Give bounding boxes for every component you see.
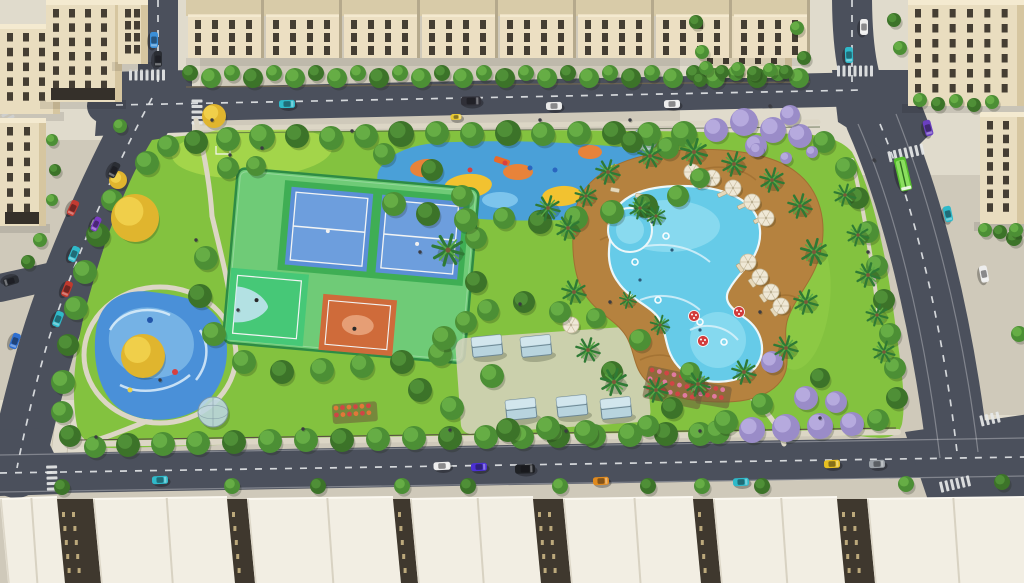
tree-canopy-light <box>899 477 909 487</box>
tree-canopy-light <box>53 402 66 415</box>
building-window <box>53 81 59 90</box>
tree-canopy-light <box>413 69 425 81</box>
mushroom-dot <box>695 314 697 316</box>
play-structure <box>468 168 473 173</box>
facade-window <box>846 554 849 559</box>
tree-canopy-light <box>604 122 618 136</box>
tree-canopy-light <box>267 66 277 76</box>
crosswalk-stripe <box>162 70 165 81</box>
building-window <box>987 203 993 212</box>
building-window <box>967 54 973 63</box>
townhouse-window <box>741 46 747 55</box>
building-window <box>7 173 13 182</box>
vehicle-cabin <box>861 23 867 30</box>
parasol-pole <box>711 177 713 179</box>
vehicle-cabin <box>454 115 459 119</box>
tree-canopy-light <box>153 433 167 447</box>
facade-window <box>541 540 544 545</box>
townhouse-window <box>558 20 564 29</box>
facade-window <box>235 540 238 545</box>
townhouse-parapet <box>498 0 576 16</box>
tree-canopy-light <box>47 135 54 142</box>
palm-crown <box>798 204 802 208</box>
tree-canopy-light <box>673 123 689 139</box>
crosswalk-stripe <box>843 66 846 77</box>
townhouse-window <box>195 33 201 42</box>
townhouse-gap <box>339 0 342 58</box>
building-window <box>915 24 921 33</box>
tree-canopy-light <box>183 66 193 76</box>
rooftop-slab <box>867 497 1024 583</box>
building-window <box>39 48 45 57</box>
building-window <box>85 23 91 32</box>
townhouse-gap <box>261 0 264 58</box>
facade-window <box>75 540 78 545</box>
townhouse-window <box>273 20 279 29</box>
tree-canopy-light <box>390 123 406 139</box>
building-window <box>987 121 993 130</box>
tree-canopy-light <box>869 410 882 423</box>
townhouse-window <box>429 46 435 55</box>
palm-crown <box>696 382 700 386</box>
mushroom-dot <box>693 317 695 319</box>
townhouse-window <box>246 33 252 42</box>
tree-canopy-light <box>1010 224 1018 232</box>
vehicle-cabin <box>828 461 835 467</box>
townhouse-window <box>324 33 330 42</box>
townhouse-window <box>480 20 486 29</box>
tree-canopy-light <box>519 66 529 76</box>
tree-canopy-light <box>404 427 418 441</box>
tree-canopy-light <box>495 208 508 221</box>
tree-canopy-light <box>251 126 267 142</box>
townhouse-window <box>541 46 547 55</box>
facade-window <box>552 554 555 559</box>
palm-crown <box>812 250 816 254</box>
building-window <box>101 23 107 32</box>
tree-canopy-light <box>204 105 218 119</box>
mushroom-dot <box>736 310 738 312</box>
townhouse-window <box>307 46 313 55</box>
townhouse-window <box>775 33 781 42</box>
facade-window <box>402 554 405 559</box>
facade-window <box>399 526 402 531</box>
vehicle-cabin <box>846 51 852 58</box>
townhouse-window <box>507 20 513 29</box>
building-window <box>23 92 29 101</box>
tree-canopy-light <box>455 69 467 81</box>
building-window <box>125 21 131 30</box>
townhouse-window <box>368 20 374 29</box>
building-window <box>85 38 91 47</box>
person <box>628 118 631 121</box>
building-window <box>101 9 107 18</box>
townhouse-parapet <box>420 0 498 16</box>
tree-canopy-light <box>764 64 772 72</box>
tree-canopy-light <box>623 69 635 81</box>
townhouse-window <box>680 33 686 42</box>
tree-canopy-light <box>663 398 676 411</box>
townhouse-window <box>741 33 747 42</box>
townhouse-window <box>351 33 357 42</box>
parasol-pole <box>732 187 734 189</box>
facade-window <box>701 540 704 545</box>
building-cornice <box>908 0 1024 5</box>
townhouse-window <box>446 46 452 55</box>
palm-crown <box>875 313 879 317</box>
building-window <box>134 33 140 42</box>
tree-canopy-light <box>497 69 509 81</box>
tree-canopy-light <box>690 16 698 24</box>
townhouse-window <box>246 20 252 29</box>
tree-canopy-light <box>462 123 476 137</box>
building-window <box>53 9 59 18</box>
tree-canopy-light <box>950 95 958 103</box>
person <box>518 302 521 305</box>
tree-canopy-light <box>375 144 388 157</box>
tree-canopy-light <box>620 424 634 438</box>
townhouse-window <box>602 20 608 29</box>
person <box>608 300 611 303</box>
facade-window <box>398 512 401 517</box>
building-window <box>1003 203 1009 212</box>
vehicle-windshield <box>483 464 485 470</box>
facade-window <box>699 526 702 531</box>
tree-canopy-light <box>692 169 704 181</box>
building-window <box>85 81 91 90</box>
townhouse-window <box>429 20 435 29</box>
mushroom-cap <box>734 307 745 318</box>
vehicle-cabin <box>151 36 157 43</box>
townhouse-window <box>480 33 486 42</box>
crosswalk-stripe <box>151 70 154 81</box>
townhouse-parapet <box>186 0 264 16</box>
townhouse-parapet <box>264 0 342 16</box>
tree-canopy-light <box>118 434 132 448</box>
aerial-render-stage <box>0 0 1024 583</box>
vehicle-cabin <box>155 55 161 62</box>
tree-canopy-light <box>329 69 341 81</box>
tree-canopy-light <box>61 426 74 439</box>
tree-canopy-light <box>321 127 335 141</box>
building-window <box>1003 162 1009 171</box>
building-window <box>932 24 938 33</box>
facade-window <box>233 526 236 531</box>
palm-crown <box>612 380 616 384</box>
facade-window <box>702 554 705 559</box>
townhouse-window <box>446 33 452 42</box>
building-window <box>101 81 107 90</box>
parasol-pole <box>570 324 572 326</box>
building-window <box>984 84 990 93</box>
facade-window <box>698 512 701 517</box>
palm-crown <box>742 370 746 374</box>
building-window <box>1003 176 1009 185</box>
building-window <box>7 142 13 151</box>
facade-window <box>78 568 81 573</box>
tree-canopy-light <box>477 66 487 76</box>
tree-canopy-light <box>561 66 571 76</box>
road <box>104 89 872 106</box>
palm-crown <box>445 247 450 252</box>
townhouse-window <box>195 20 201 29</box>
townhouse-window <box>663 46 669 55</box>
building-window <box>1003 190 1009 199</box>
tree-canopy-light <box>553 479 563 489</box>
crosswalk-stripe <box>129 70 132 81</box>
townhouse-window <box>524 33 530 42</box>
building-window <box>967 9 973 18</box>
vehicle-cabin <box>550 103 557 109</box>
building-window <box>125 33 131 42</box>
parasol-pole <box>751 201 753 203</box>
vehicle-windshield <box>558 103 560 109</box>
building-window <box>69 23 75 32</box>
townhouse-window <box>558 46 564 55</box>
townhouse-window <box>324 46 330 55</box>
crosswalk-stripe <box>859 66 862 77</box>
palm-crown <box>654 214 657 217</box>
tree-canopy-light <box>59 335 72 348</box>
vehicle-cabin <box>467 98 476 105</box>
building-window <box>1003 148 1009 157</box>
tree-canopy-light <box>137 152 151 166</box>
crosswalk-stripe <box>848 66 851 77</box>
vehicle-windshield <box>836 461 838 467</box>
facade-window <box>853 526 856 531</box>
building-window <box>39 77 45 86</box>
building-window <box>950 39 956 48</box>
building-window <box>984 24 990 33</box>
townhouse-window <box>324 20 330 29</box>
building-window <box>69 9 75 18</box>
palm-crown <box>843 193 847 197</box>
mushroom-fountain <box>734 307 745 318</box>
facade-window <box>63 526 66 531</box>
splash-equipment <box>172 369 178 375</box>
play-structure <box>503 161 508 166</box>
facade-window <box>539 526 542 531</box>
tree-canopy-light <box>188 432 202 446</box>
vehicle-windshield <box>745 479 747 485</box>
townhouse-window <box>351 46 357 55</box>
townhouse-window <box>697 33 703 42</box>
tree-canopy-light <box>798 52 806 60</box>
townhouse-window <box>585 46 591 55</box>
person <box>758 310 761 313</box>
vehicle-windshield <box>151 44 157 46</box>
building-window <box>932 84 938 93</box>
palm-crown <box>546 206 550 210</box>
building-window <box>932 39 938 48</box>
tree-canopy-light <box>66 297 80 311</box>
tree-canopy-light <box>371 69 383 81</box>
tree-canopy-light <box>418 203 432 217</box>
tree-canopy-light <box>234 351 248 365</box>
building-window <box>101 66 107 75</box>
mushroom-dot <box>704 339 706 341</box>
building-window <box>984 54 990 63</box>
building-window <box>125 45 131 54</box>
facade-window <box>549 526 552 531</box>
tree-canopy-light <box>479 300 492 313</box>
building-window <box>134 21 140 30</box>
building-window <box>915 69 921 78</box>
tree-canopy-light <box>456 209 470 223</box>
tree-canopy-light <box>755 479 765 489</box>
palm-crown <box>648 154 652 158</box>
person <box>818 416 821 419</box>
tree-canopy-light <box>442 397 456 411</box>
tree-canopy-light <box>694 74 702 82</box>
person <box>94 435 97 438</box>
building-window <box>932 9 938 18</box>
townhouse-window <box>619 46 625 55</box>
tree-canopy-light <box>186 131 200 145</box>
townhouse-window <box>195 46 201 55</box>
mushroom-cap <box>698 336 709 347</box>
tree-canopy-light <box>837 158 850 171</box>
facade-window <box>554 568 557 573</box>
tree-canopy-light <box>894 42 902 50</box>
tree-canopy-light <box>696 46 704 54</box>
tree-canopy-light <box>434 327 448 341</box>
building-cornice <box>980 112 1024 117</box>
building-window <box>950 9 956 18</box>
tree-canopy-light <box>272 361 286 375</box>
tree-canopy-light <box>751 144 759 152</box>
person <box>866 250 869 253</box>
tree-canopy-light <box>248 157 260 169</box>
crosswalk-stripe <box>837 66 840 77</box>
facade-window <box>848 568 851 573</box>
townhouse-window <box>212 33 218 42</box>
tree-canopy-light <box>631 330 644 343</box>
building-window <box>101 38 107 47</box>
palm-crown <box>804 300 808 304</box>
facade-window <box>65 540 68 545</box>
facade-window <box>404 568 407 573</box>
tree-canopy-light <box>700 62 708 70</box>
vehicle-cabin <box>597 478 604 484</box>
crosswalk-stripe <box>146 70 149 81</box>
tree-canopy-light <box>410 379 424 393</box>
building-window <box>7 127 13 136</box>
vehicle-windshield <box>164 477 166 483</box>
crosswalk-stripe <box>192 105 203 108</box>
tree-canopy-light <box>762 119 778 135</box>
tree-canopy-light <box>393 66 403 76</box>
building-window <box>69 52 75 61</box>
townhouse-gap <box>651 0 654 58</box>
person <box>418 250 421 253</box>
building-window <box>1003 121 1009 130</box>
tree-canopy-light <box>351 66 361 76</box>
building-window <box>984 9 990 18</box>
townhouse-parapet <box>732 0 810 16</box>
tree-canopy-light <box>641 479 651 489</box>
facade-window <box>542 554 545 559</box>
palm-crown <box>856 233 860 237</box>
palm-crown <box>654 388 658 392</box>
building-window <box>39 33 45 42</box>
townhouse-window <box>402 33 408 42</box>
tree-canopy-light <box>881 324 894 337</box>
rooftop-slab <box>93 497 235 583</box>
facade-window <box>843 526 846 531</box>
building-cornice <box>0 118 46 123</box>
parasol-pole <box>765 217 767 219</box>
facade-window <box>238 568 241 573</box>
palm-crown <box>658 323 661 326</box>
building-side-shade <box>1017 0 1024 106</box>
tree-canopy-light <box>732 63 740 71</box>
vehicle-windshield <box>291 101 293 107</box>
tree-canopy-light <box>791 22 799 30</box>
tree-canopy-light <box>190 285 204 299</box>
townhouse-window <box>775 46 781 55</box>
person <box>158 378 161 381</box>
tree-canopy-light <box>440 427 454 441</box>
palm-crown <box>572 290 576 294</box>
townhouse-window <box>212 46 218 55</box>
facade-window <box>845 540 848 545</box>
tree-canopy-light <box>815 132 828 145</box>
tree-canopy-light <box>287 125 301 139</box>
building-window <box>53 23 59 32</box>
building-side-shade <box>1017 112 1024 224</box>
townhouse-window <box>463 20 469 29</box>
tree-canopy-light <box>569 122 583 136</box>
tree-canopy-light <box>75 261 89 275</box>
tree-canopy-light <box>34 234 42 242</box>
tree-canopy-light <box>225 66 235 76</box>
tree-canopy-light <box>732 110 749 127</box>
building-window <box>53 66 59 75</box>
building-window <box>24 173 30 182</box>
building-window <box>85 52 91 61</box>
tree-canopy-light <box>225 479 235 489</box>
vehicle-windshield <box>446 463 448 469</box>
tree-canopy-light <box>551 302 564 315</box>
townhouse-window <box>307 33 313 42</box>
tree-canopy-light <box>665 69 677 81</box>
tree-canopy-light <box>204 323 218 337</box>
townhouse-window <box>385 33 391 42</box>
townhouse-window <box>229 46 235 55</box>
facade-window <box>551 540 554 545</box>
tree-canopy-light <box>581 69 593 81</box>
building-window <box>85 66 91 75</box>
vehicle-cabin <box>668 101 675 107</box>
townhouse-window <box>463 33 469 42</box>
tree-canopy-light <box>55 480 65 490</box>
facade-window <box>544 568 547 573</box>
tree-canopy-light <box>807 147 814 154</box>
building-window <box>69 81 75 90</box>
aerial-park-render <box>0 0 1024 583</box>
townhouse-window <box>229 33 235 42</box>
person <box>301 427 304 430</box>
facade-window <box>842 512 845 517</box>
facade-window <box>72 512 75 517</box>
building-window <box>967 84 973 93</box>
vehicle-windshield <box>459 115 461 119</box>
building-window <box>24 127 30 136</box>
tree-canopy-light <box>588 309 600 321</box>
building-window <box>101 52 107 61</box>
facade-window <box>858 568 861 573</box>
